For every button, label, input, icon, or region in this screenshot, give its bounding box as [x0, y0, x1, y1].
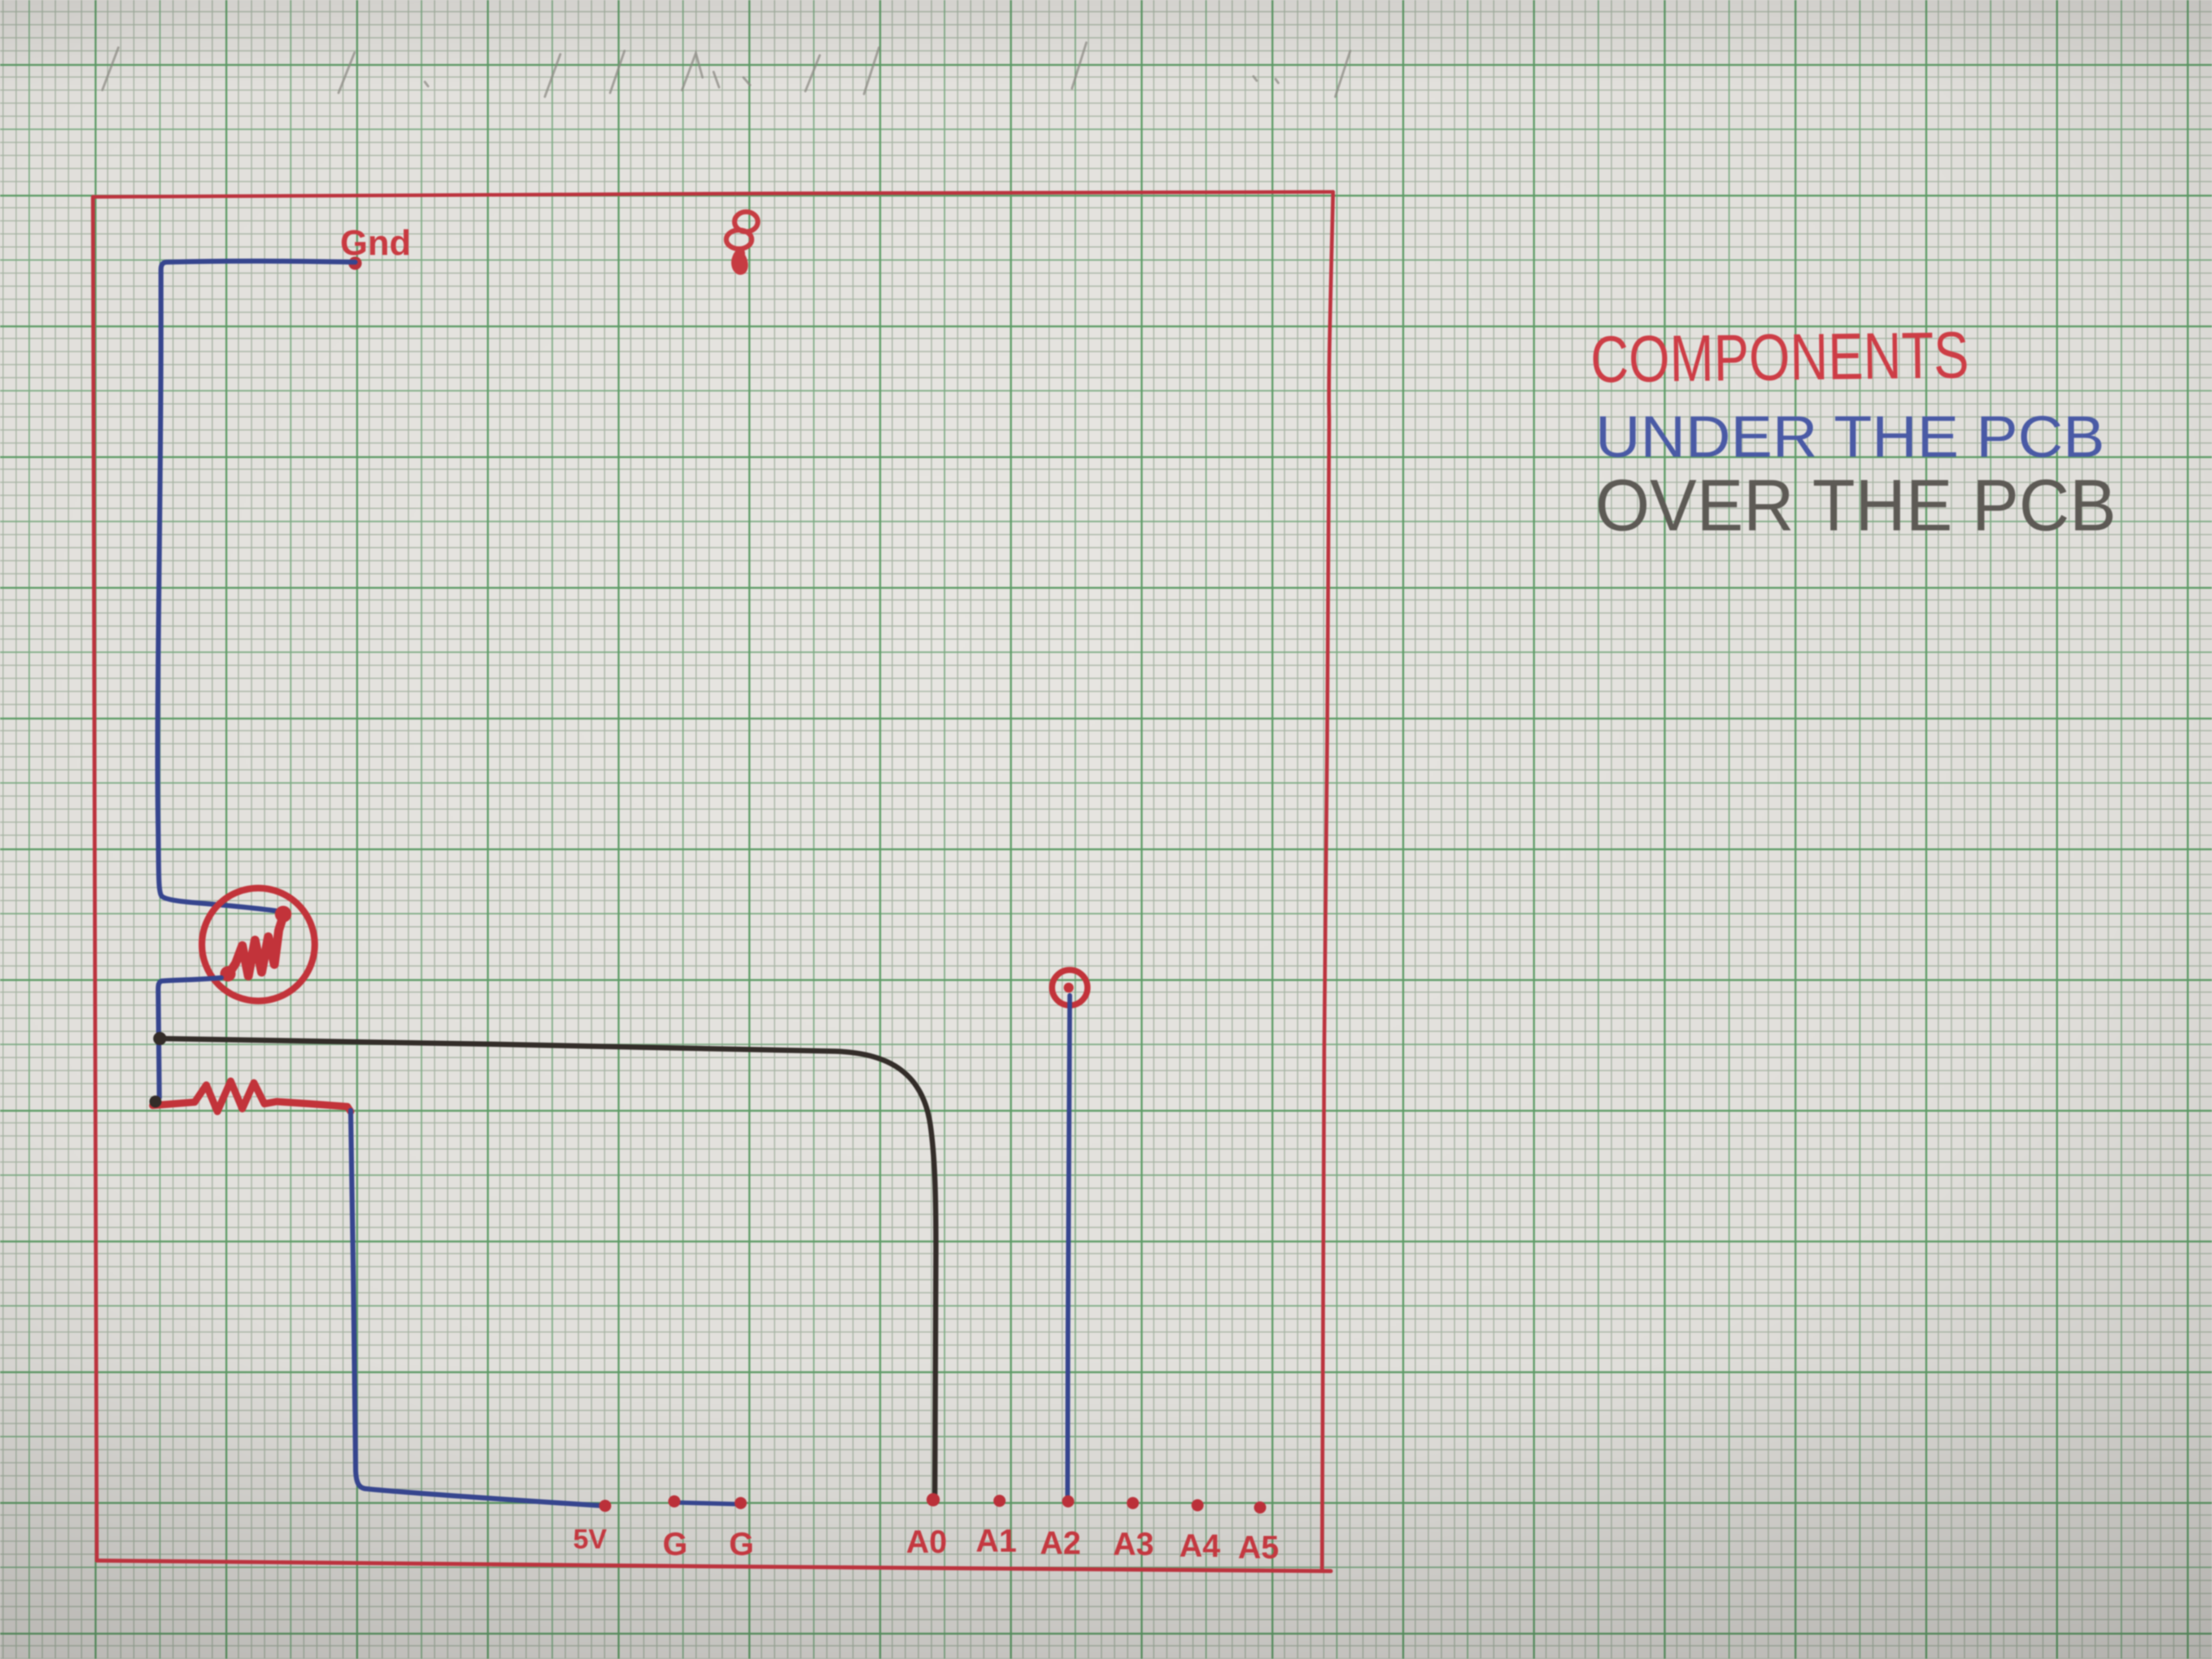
- svg-text:UNDER THE PCB: UNDER THE PCB: [1595, 404, 2105, 469]
- svg-text:Gnd: Gnd: [340, 223, 411, 263]
- svg-text:5V: 5V: [573, 1524, 607, 1554]
- svg-text:A1: A1: [976, 1523, 1017, 1559]
- svg-text:A4: A4: [1179, 1528, 1220, 1564]
- svg-text:A5: A5: [1238, 1530, 1279, 1566]
- svg-text:A3: A3: [1113, 1526, 1154, 1562]
- svg-text:A0: A0: [906, 1524, 947, 1560]
- svg-text:G: G: [729, 1526, 754, 1562]
- svg-text:COMPONENTS: COMPONENTS: [1590, 319, 1970, 397]
- svg-text:G: G: [663, 1526, 688, 1562]
- svg-text:OVER THE PCB: OVER THE PCB: [1595, 465, 2116, 546]
- svg-text:A2: A2: [1040, 1525, 1081, 1561]
